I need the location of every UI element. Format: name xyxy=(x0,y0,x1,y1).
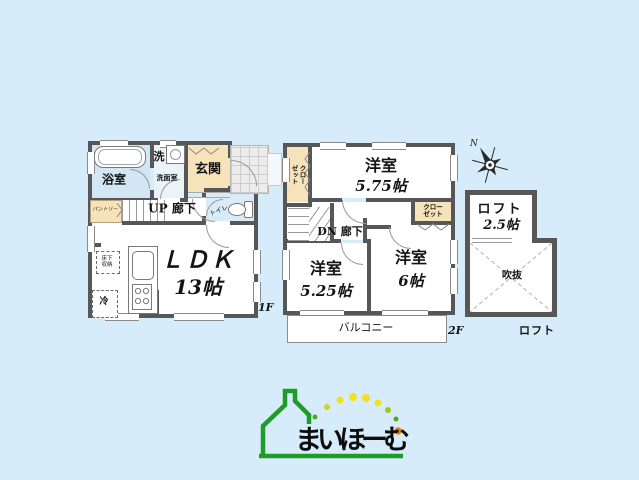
wall-segment xyxy=(308,198,342,202)
washbasin-bowl-icon xyxy=(170,149,181,160)
underfloor-storage-label: 床下収納 xyxy=(100,256,114,268)
window-marker xyxy=(282,158,290,182)
bedroom-b-label: 洋室 xyxy=(310,260,342,278)
window-marker xyxy=(450,240,458,264)
bifold-door-icon xyxy=(417,223,449,231)
ldk-label: ＬＤＫ xyxy=(161,247,236,272)
laundry-label: 洗 xyxy=(154,151,165,163)
window-marker xyxy=(87,226,95,252)
kitchen-sink-icon xyxy=(132,251,154,280)
bath-label: 浴室 xyxy=(102,173,126,186)
ldk-size-label: 13帖 xyxy=(174,276,222,298)
window-marker xyxy=(450,268,458,294)
window-marker xyxy=(450,155,458,181)
toilet-bowl-icon xyxy=(228,203,246,216)
bifold-door-icon xyxy=(189,147,219,155)
compass-north-label: N xyxy=(469,139,479,149)
fridge-label: 冷 xyxy=(99,298,108,308)
wall-segment xyxy=(532,190,537,243)
floor1-label: 1F xyxy=(258,301,273,314)
approach-step xyxy=(267,153,282,186)
wall-segment xyxy=(465,312,557,317)
washroom-label: 洗面室 xyxy=(157,174,178,182)
brand-logo: まいほーむ xyxy=(247,386,415,464)
hallway-1f-label: UP 廊下 xyxy=(148,202,196,215)
bathtub-inner-icon xyxy=(98,149,142,165)
wall-segment xyxy=(230,221,258,225)
floor2-label: 2F xyxy=(448,324,463,337)
bedroom-a-size: 5.75帖 xyxy=(355,178,407,195)
wall-segment xyxy=(552,238,557,317)
entrance-step-line xyxy=(188,197,230,198)
window-marker xyxy=(372,142,406,150)
balcony-label: バルコニー xyxy=(339,322,394,334)
wall-segment xyxy=(150,190,154,198)
stove-icon xyxy=(132,284,152,310)
hallway-2f-label: DN 廊下 xyxy=(317,226,362,238)
window-marker xyxy=(282,250,290,280)
closet-left-label: クローゼット xyxy=(290,164,306,186)
wall-segment xyxy=(122,221,206,225)
window-marker xyxy=(174,313,224,321)
entrance-label: 玄関 xyxy=(195,163,221,177)
wall-segment xyxy=(465,190,537,195)
window-marker xyxy=(320,142,346,150)
void-label: 吹抜 xyxy=(502,271,522,282)
wall-segment xyxy=(367,225,391,229)
bedroom-c-size: 6帖 xyxy=(398,273,423,290)
floorplan-image: 浴室 洗 洗面室 玄関 パントリー UP 廊下 トイレ ＬＤＫ 13帖 床下収納… xyxy=(0,0,639,480)
window-marker xyxy=(253,282,261,302)
wall-segment xyxy=(367,243,371,311)
bedroom-c-label: 洋室 xyxy=(395,249,427,267)
loft-room-size: 2.5帖 xyxy=(483,219,519,233)
compass-rose-icon: N xyxy=(466,136,512,188)
stairs-2f xyxy=(288,207,309,241)
closet-right-label: クローゼット xyxy=(423,204,444,218)
brand-text: まいほーむ xyxy=(295,425,409,456)
pantry-label: パントリー xyxy=(92,207,117,213)
window-marker xyxy=(253,250,261,274)
loft-section-label: ロフト xyxy=(519,325,555,337)
bedroom-b-size: 5.25帖 xyxy=(300,283,352,300)
bedroom-c-floor xyxy=(371,229,451,311)
loft-room-label: ロフト xyxy=(477,203,522,217)
bedroom-a-label: 洋室 xyxy=(365,157,397,175)
entrance-step-line xyxy=(188,192,230,193)
